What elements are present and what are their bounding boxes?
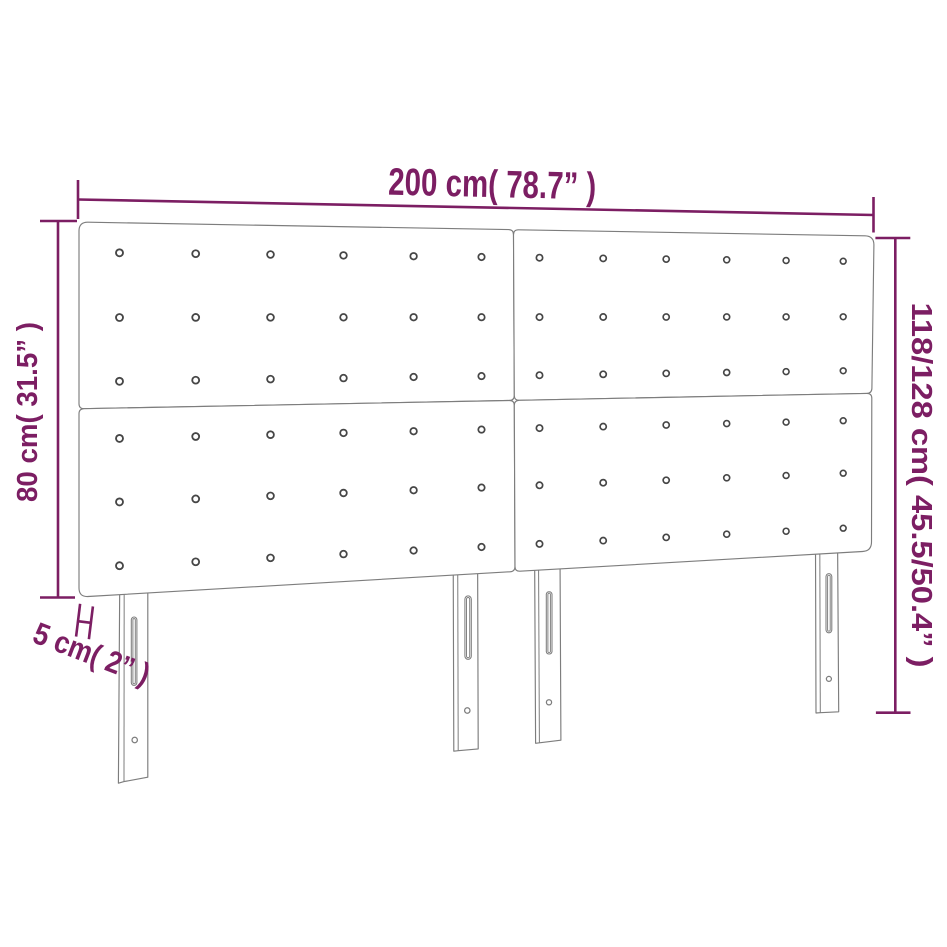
svg-text:200 cm( 78.7” ): 200 cm( 78.7” ) (388, 161, 597, 209)
svg-text:118/128 cm( 45.5/50.4” ): 118/128 cm( 45.5/50.4” ) (905, 303, 937, 668)
svg-text:80 cm( 31.5” ): 80 cm( 31.5” ) (12, 322, 44, 502)
